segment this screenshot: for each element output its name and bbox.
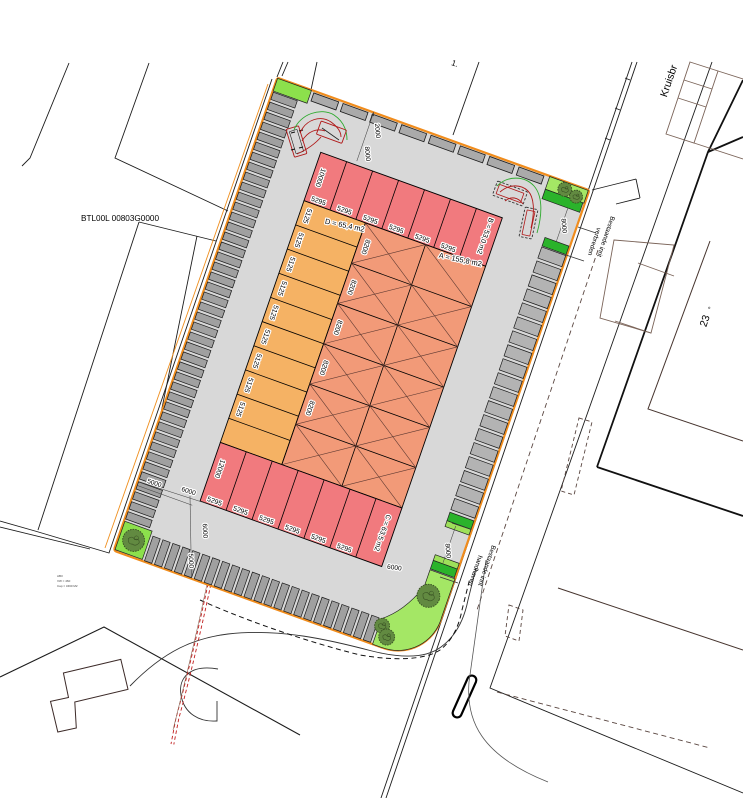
- svg-text:VW = 460: VW = 460: [57, 579, 71, 583]
- svg-text:AB3: AB3: [57, 574, 63, 578]
- svg-text:BTL00L 00803G0000: BTL00L 00803G0000: [81, 214, 159, 223]
- svg-text:8000: 8000: [363, 146, 371, 162]
- svg-text:8000: 8000: [443, 543, 451, 559]
- svg-text:5000: 5000: [187, 553, 195, 568]
- svg-text:Cap = 3460 M2: Cap = 3460 M2: [57, 584, 78, 588]
- svg-text:6000: 6000: [201, 523, 209, 538]
- svg-text:2000: 2000: [373, 123, 381, 139]
- svg-text:8000: 8000: [559, 218, 567, 234]
